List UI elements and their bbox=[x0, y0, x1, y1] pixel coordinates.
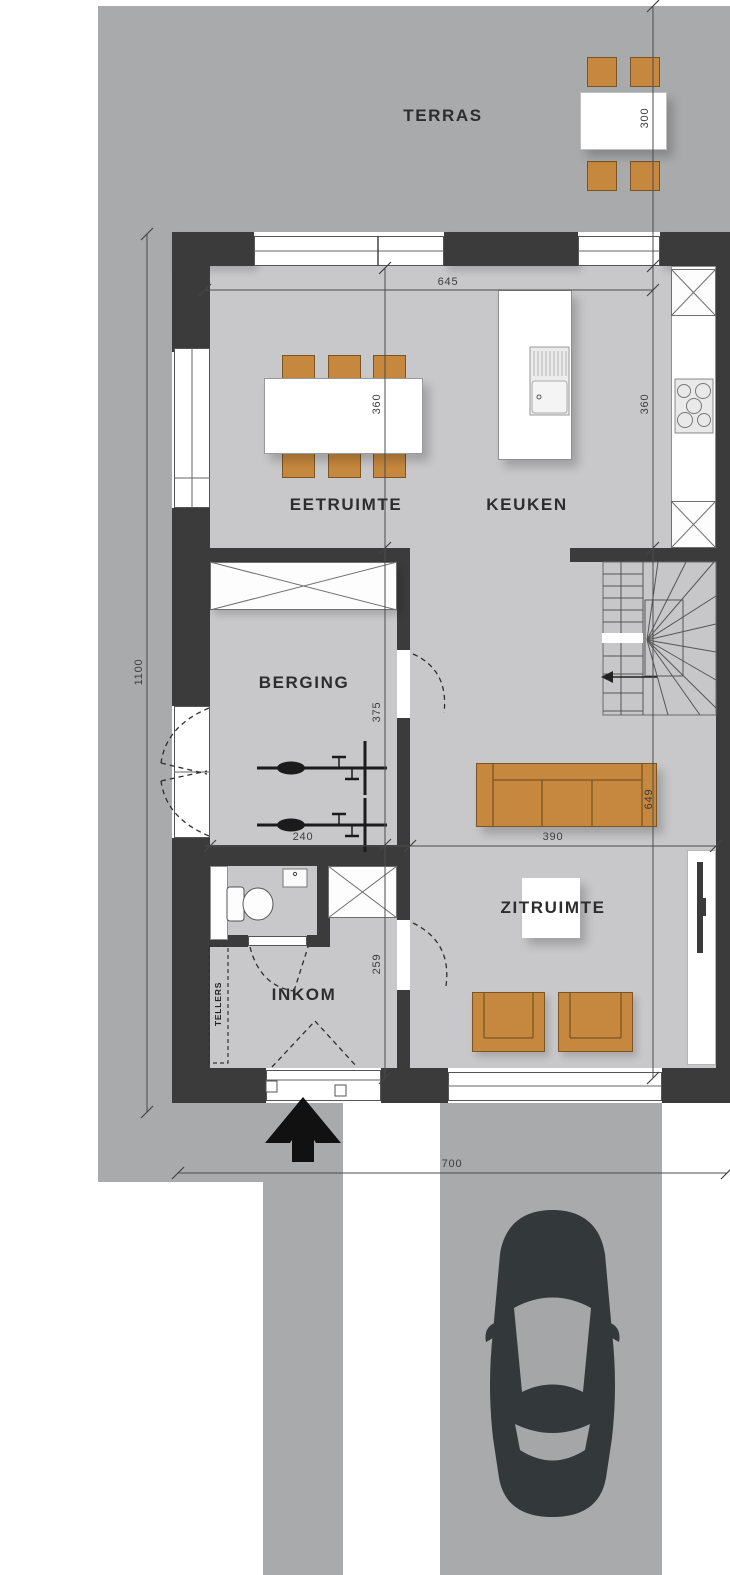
room-label-inkom: INKOM bbox=[272, 985, 337, 1005]
room-label-eetruimte: EETRUIMTE bbox=[290, 495, 403, 515]
window-eetruimte-top bbox=[254, 236, 444, 266]
window-eetruimte-left bbox=[174, 348, 210, 508]
room-label-zitruimte: ZITRUIMTE bbox=[500, 898, 605, 918]
dining-chair bbox=[282, 452, 315, 478]
wall-left-c bbox=[172, 838, 210, 1103]
wall-berging-top bbox=[210, 548, 410, 562]
front-door bbox=[266, 1070, 381, 1101]
dim-keuken-depth: 360 bbox=[639, 394, 651, 415]
cabinet-kitchen-top bbox=[671, 269, 716, 316]
wall-inkom-top bbox=[210, 845, 410, 866]
wall-left-a bbox=[172, 232, 210, 352]
dim-berging-depth: 375 bbox=[371, 702, 383, 723]
dim-terrace-depth: 300 bbox=[639, 108, 651, 129]
wc-cabinet bbox=[210, 866, 228, 940]
wall-berging-right-a bbox=[397, 562, 410, 650]
front-path bbox=[263, 1103, 343, 1575]
tv-sideboard bbox=[687, 850, 716, 1065]
floorplan-canvas: TERRAS EETRUIMTE KEUKEN BERGING INKOM ZI… bbox=[0, 0, 730, 1575]
driveway bbox=[440, 1103, 662, 1575]
cabinet-berging bbox=[210, 562, 397, 610]
window-zitruimte-bottom bbox=[448, 1072, 662, 1101]
door-inkom-zitruimte bbox=[397, 920, 410, 990]
dim-zitruimte-width: 390 bbox=[543, 831, 564, 843]
wall-bottom-a bbox=[172, 1068, 266, 1103]
dim-plot-width: 700 bbox=[442, 1158, 463, 1170]
cabinet-inkom bbox=[328, 866, 397, 918]
terrace-chair bbox=[587, 57, 617, 87]
dining-table bbox=[264, 378, 423, 454]
terrace-chair bbox=[630, 161, 660, 191]
wall-berging-right-b bbox=[397, 718, 410, 845]
site-left-band bbox=[98, 232, 172, 1182]
dining-chair bbox=[328, 452, 361, 478]
wall-top-mid bbox=[444, 232, 578, 266]
room-label-berging: BERGING bbox=[259, 673, 350, 693]
armchair bbox=[558, 992, 633, 1052]
door-berging-exterior bbox=[174, 706, 210, 838]
door-wc bbox=[248, 936, 307, 946]
armchair bbox=[472, 992, 545, 1052]
meters-label: TELLERS bbox=[213, 982, 223, 1026]
window-keuken-top bbox=[578, 236, 660, 266]
wall-stairs-top bbox=[570, 548, 716, 562]
wall-left-b bbox=[172, 508, 210, 706]
dim-eetruimte-depth: 360 bbox=[371, 394, 383, 415]
dim-total-depth: 1100 bbox=[133, 659, 145, 686]
wall-bottom-b bbox=[381, 1068, 448, 1103]
dim-living-depth: 649 bbox=[643, 789, 655, 810]
sofa bbox=[476, 763, 657, 827]
wall-right bbox=[716, 232, 730, 1103]
door-berging-hall bbox=[397, 650, 410, 718]
room-label-keuken: KEUKEN bbox=[486, 495, 567, 515]
wall-bottom-c bbox=[662, 1068, 730, 1103]
terrace-chair bbox=[630, 57, 660, 87]
wall-hall-a bbox=[397, 866, 410, 920]
cabinet-kitchen-bottom bbox=[671, 501, 716, 548]
dim-interior-width: 645 bbox=[438, 276, 459, 288]
terrace-table bbox=[580, 92, 667, 150]
wall-wc-bottom-b bbox=[307, 935, 330, 947]
wall-hall-b bbox=[397, 990, 410, 1068]
dining-chair bbox=[373, 452, 406, 478]
kitchen-island bbox=[498, 290, 572, 460]
terrace-chair bbox=[587, 161, 617, 191]
dim-inkom-depth: 259 bbox=[371, 954, 383, 975]
site-front-apron bbox=[172, 1103, 263, 1182]
room-label-terras: TERRAS bbox=[403, 106, 483, 126]
dim-berging-width: 240 bbox=[293, 831, 314, 843]
